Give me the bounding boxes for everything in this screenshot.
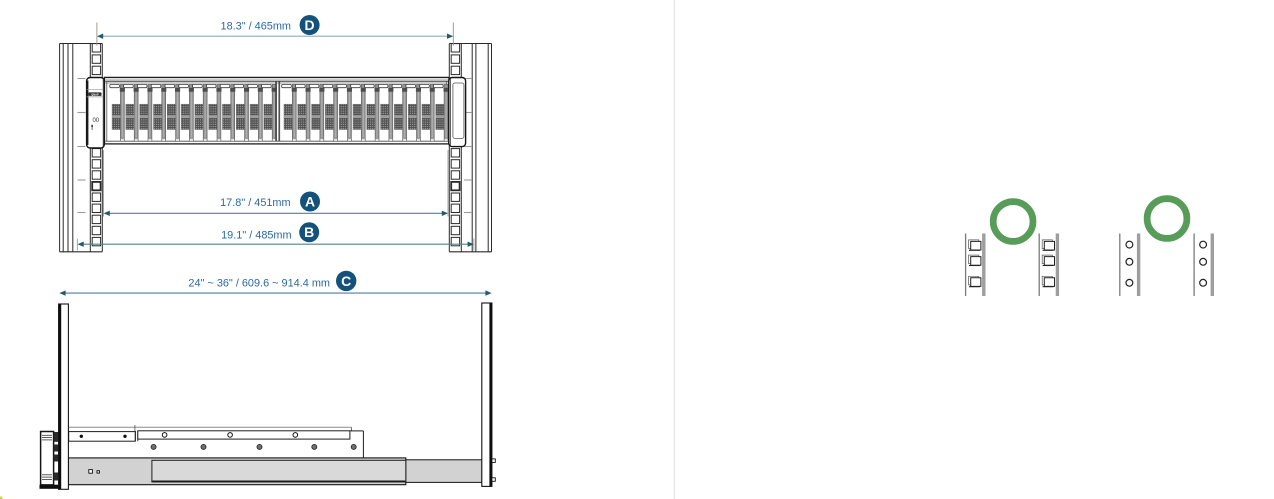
- svg-text:18.3" / 465mm: 18.3" / 465mm: [221, 21, 291, 33]
- svg-text:QNAP: QNAP: [91, 92, 99, 96]
- svg-text:19.1" / 485mm: 19.1" / 485mm: [221, 230, 291, 242]
- svg-text:B: B: [304, 224, 314, 240]
- svg-text:17.8" / 451mm: 17.8" / 451mm: [220, 197, 290, 209]
- svg-text:D: D: [305, 17, 315, 33]
- svg-text:A: A: [305, 193, 315, 209]
- svg-text:C: C: [341, 273, 351, 289]
- svg-text:00: 00: [92, 118, 99, 124]
- svg-text:24" ~ 36" / 609.6 ~ 914.4 mm: 24" ~ 36" / 609.6 ~ 914.4 mm: [188, 278, 330, 290]
